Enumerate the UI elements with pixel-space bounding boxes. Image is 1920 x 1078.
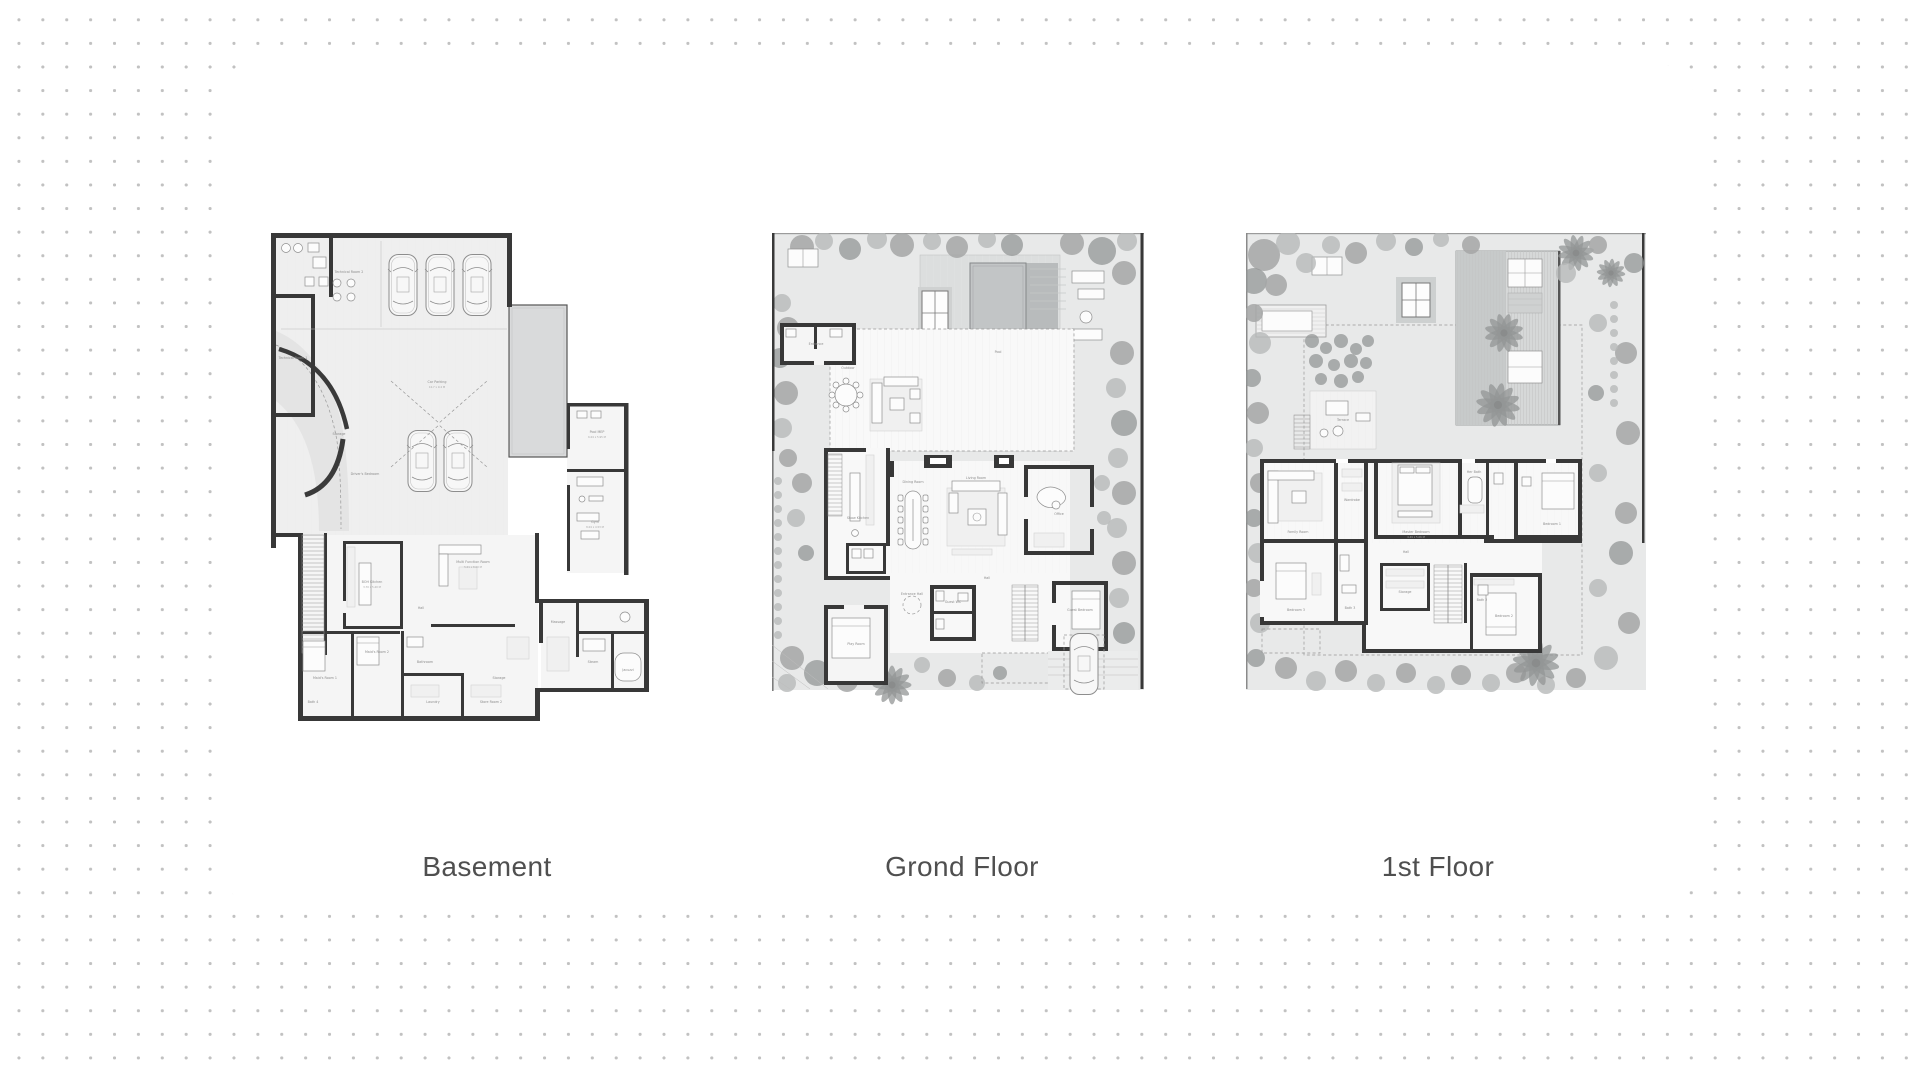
first-floor-caption: 1st Floor [1382, 851, 1495, 883]
room-label: Play Room [847, 642, 864, 646]
room-label: Laundry [426, 700, 439, 704]
room-dim: 10.7 x 9.4 M [429, 385, 445, 389]
site-boundary-left [1246, 233, 1248, 689]
room-label: Store Room 2 [480, 700, 502, 704]
room-label: Bedroom 3 [1287, 608, 1305, 612]
basement-plan-drawing: Technical Room 2 Technical Room 1 Car Pa… [271, 233, 649, 723]
room-label: Massage [551, 620, 565, 624]
room-label: Maid's Room 1 [313, 676, 337, 680]
room-label: Office [1054, 512, 1064, 516]
room-label: Bath 2 [1477, 598, 1488, 602]
room-label: Hall [418, 606, 424, 610]
room-label: Master Bedroom [1402, 530, 1429, 534]
room-label: Bath 3 [1345, 606, 1356, 610]
room-label: Hall [1403, 550, 1409, 554]
room-label: Bathroom [417, 660, 433, 664]
pool-void [1456, 251, 1561, 436]
grond-floor-plan-drawing: Entrance Outdoor Pool Show Kitchen Dinin… [772, 233, 1144, 723]
skylight-window [1396, 277, 1436, 323]
room-label: Pool MEP [590, 430, 605, 434]
first-floor-plan-drawing: Terrace Family Room Master Bedroom 4.49 … [1246, 233, 1646, 723]
room-label: Car Parking [428, 380, 447, 384]
room-label: BOH Kitchen [362, 580, 383, 584]
grond-floor-plan: Entrance Outdoor Pool Show Kitchen Dinin… [772, 233, 1144, 723]
room-label: Living Room [966, 476, 986, 480]
room-label: Outdoor [841, 366, 855, 370]
room-dim: 5.01 x 8.00 M [464, 565, 482, 569]
room-label: Guest Bedroom [1067, 608, 1093, 612]
house-walls [1260, 459, 1582, 653]
room-label: Bedroom 1 [1543, 522, 1561, 526]
room-label: Gym [591, 520, 599, 524]
room-label: Maid's Room 2 [365, 650, 389, 654]
room-label: Wardrobe [1344, 498, 1360, 502]
room-label: Storage [1399, 590, 1412, 594]
room-label: Pool [995, 350, 1002, 354]
basement-floor-plan: Technical Room 2 Technical Room 1 Car Pa… [271, 233, 649, 723]
room-label: Guest WC [945, 600, 962, 604]
room-dim: 4.49 x 5.06 M [1407, 535, 1425, 539]
room-dim: 6.04 x 5.95 M [588, 435, 606, 439]
room-label: Hall [984, 576, 990, 580]
room-label: Bath 4 [308, 700, 319, 704]
page-background: Technical Room 2 Technical Room 1 Car Pa… [0, 0, 1920, 1078]
room-label: Steam [588, 660, 599, 664]
room-label: Entrance Hall [901, 592, 923, 596]
room-label: Jacuzzi [621, 668, 633, 672]
room-label: Dining Room [902, 480, 923, 484]
room-label: Technical Room 2 [334, 270, 364, 274]
room-label: Bedroom 2 [1495, 614, 1513, 618]
basement-stairs [302, 535, 324, 653]
site-boundary-right [1642, 233, 1645, 543]
room-label: Storage [493, 676, 506, 680]
parked-car [1070, 634, 1098, 695]
room-label: Technical Room 1 [278, 356, 308, 360]
room-label: Multi Function Room [456, 560, 490, 564]
first-floor-plan: Terrace Family Room Master Bedroom 4.49 … [1246, 233, 1646, 723]
room-dim: 8.04 x 4.53 M [586, 525, 604, 529]
room-label: Terrace [1336, 418, 1349, 422]
room-label: Entrance [809, 342, 824, 346]
room-label: Family Room [1287, 530, 1308, 534]
room-label: Storage [333, 432, 346, 436]
room-label: Driver's Bedroom [351, 472, 380, 476]
grond-floor-caption: Grond Floor [885, 851, 1039, 883]
room-label: Show Kitchen [847, 516, 869, 520]
room-label: Her Bath [1467, 470, 1482, 474]
basement-caption: Basement [422, 851, 551, 883]
room-dim: 3.70 x 5.40 M [363, 585, 381, 589]
